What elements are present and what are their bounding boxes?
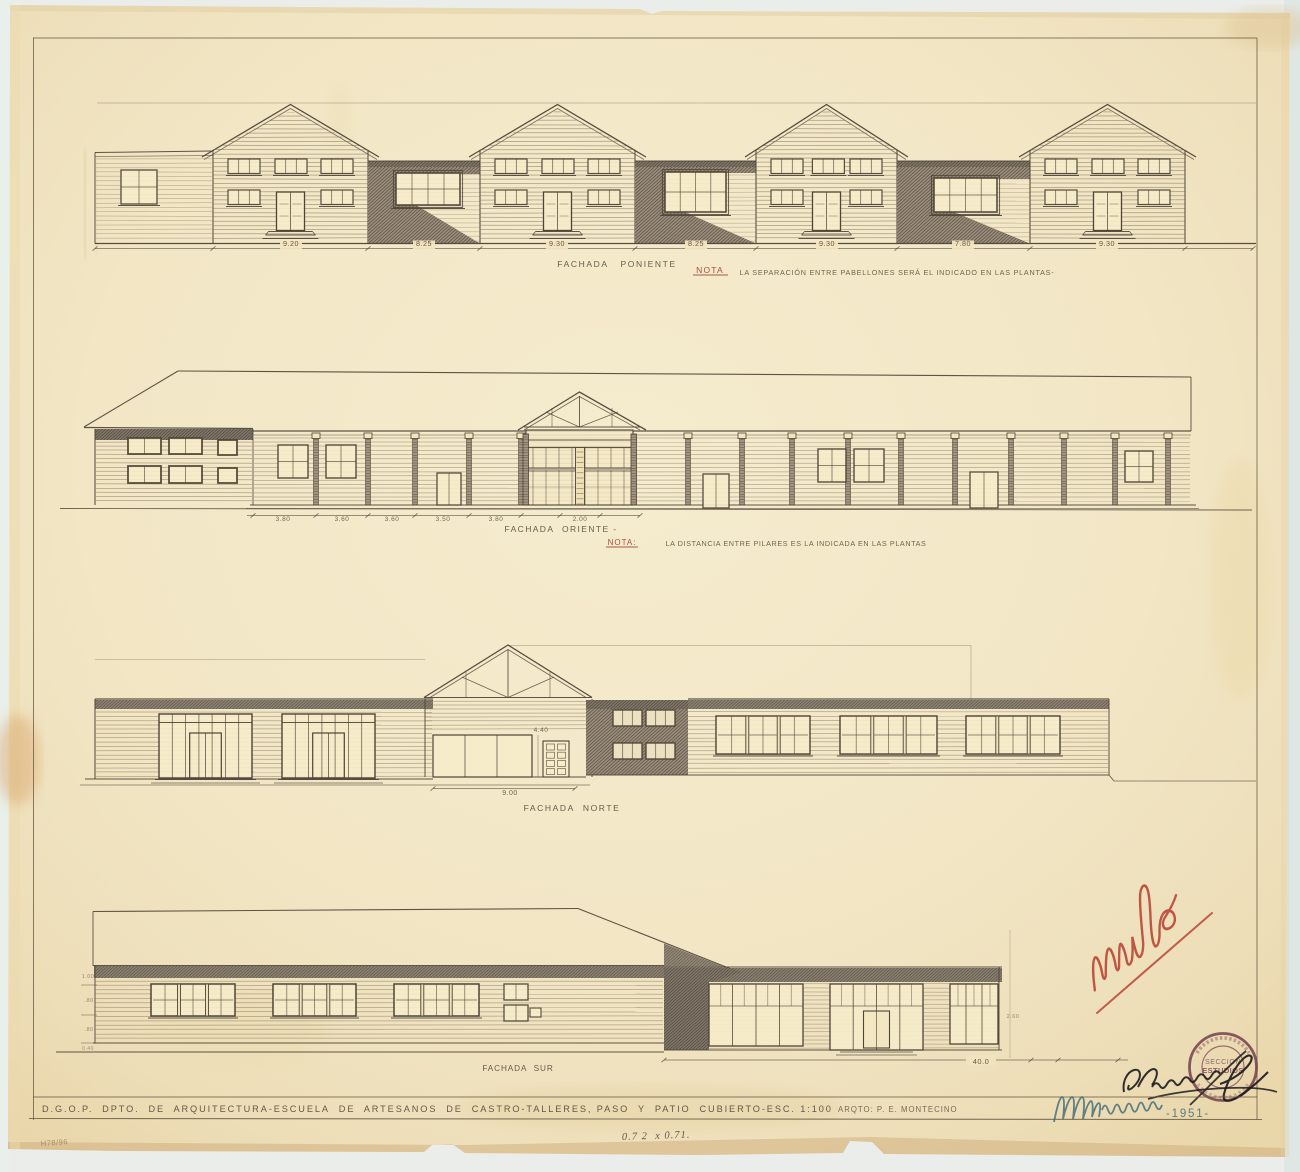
svg-text:9.20: 9.20: [283, 239, 299, 248]
svg-text:9.30: 9.30: [1099, 239, 1115, 248]
svg-text:LA SEPARACIÓN ENTRE PABELLONES: LA SEPARACIÓN ENTRE PABELLONES SERÁ EL I…: [740, 268, 1055, 277]
svg-text:FACHADA NORTE: FACHADA NORTE: [524, 803, 621, 813]
svg-text:LA DISTANCIA ENTRE PILARES ES: LA DISTANCIA ENTRE PILARES ES LA INDICAD…: [666, 539, 927, 548]
svg-text:NOTA: NOTA: [696, 265, 724, 275]
svg-text:H78/96: H78/96: [41, 1137, 69, 1148]
svg-text:9.30: 9.30: [549, 239, 565, 248]
svg-text:2.00: 2.00: [573, 516, 588, 523]
svg-text:9.30: 9.30: [819, 239, 835, 248]
svg-text:4.40: 4.40: [534, 727, 549, 734]
svg-text:.80: .80: [84, 998, 93, 1004]
svg-text:3.80: 3.80: [489, 516, 504, 523]
svg-text:3.60: 3.60: [385, 516, 400, 523]
svg-text:ESTUDIOS: ESTUDIOS: [1202, 1066, 1244, 1075]
svg-text:FACHADA ORIENTE -: FACHADA ORIENTE -: [504, 524, 617, 534]
svg-text:3.50: 3.50: [436, 516, 451, 523]
svg-text:3.60: 3.60: [335, 516, 350, 523]
svg-text:0.40: 0.40: [82, 1046, 94, 1052]
svg-text:8.25: 8.25: [688, 239, 704, 248]
svg-text:2.60: 2.60: [1007, 1014, 1020, 1020]
svg-text:8.25: 8.25: [416, 239, 432, 248]
svg-text:40.0: 40.0: [973, 1057, 990, 1066]
svg-text:3.80: 3.80: [276, 516, 291, 523]
svg-text:ARQTO: P. E. MONTECINO: ARQTO: P. E. MONTECINO: [838, 1105, 958, 1114]
svg-text:.80: .80: [84, 1027, 93, 1033]
svg-text:D.G.O.P. DPTO. DE ARQUITECT: D.G.O.P. DPTO. DE ARQUITECTURA-ESCUELA D…: [42, 1104, 833, 1114]
svg-text:-1951-: -1951-: [1166, 1108, 1210, 1120]
svg-text:FACHADA PONIENTE: FACHADA PONIENTE: [557, 259, 676, 269]
svg-text:7.80: 7.80: [955, 239, 971, 248]
svg-text:NOTA:: NOTA:: [608, 538, 637, 547]
svg-text:1.00: 1.00: [82, 974, 95, 980]
svg-text:9.00: 9.00: [502, 790, 518, 797]
svg-text:FACHADA SUR: FACHADA SUR: [482, 1064, 553, 1073]
